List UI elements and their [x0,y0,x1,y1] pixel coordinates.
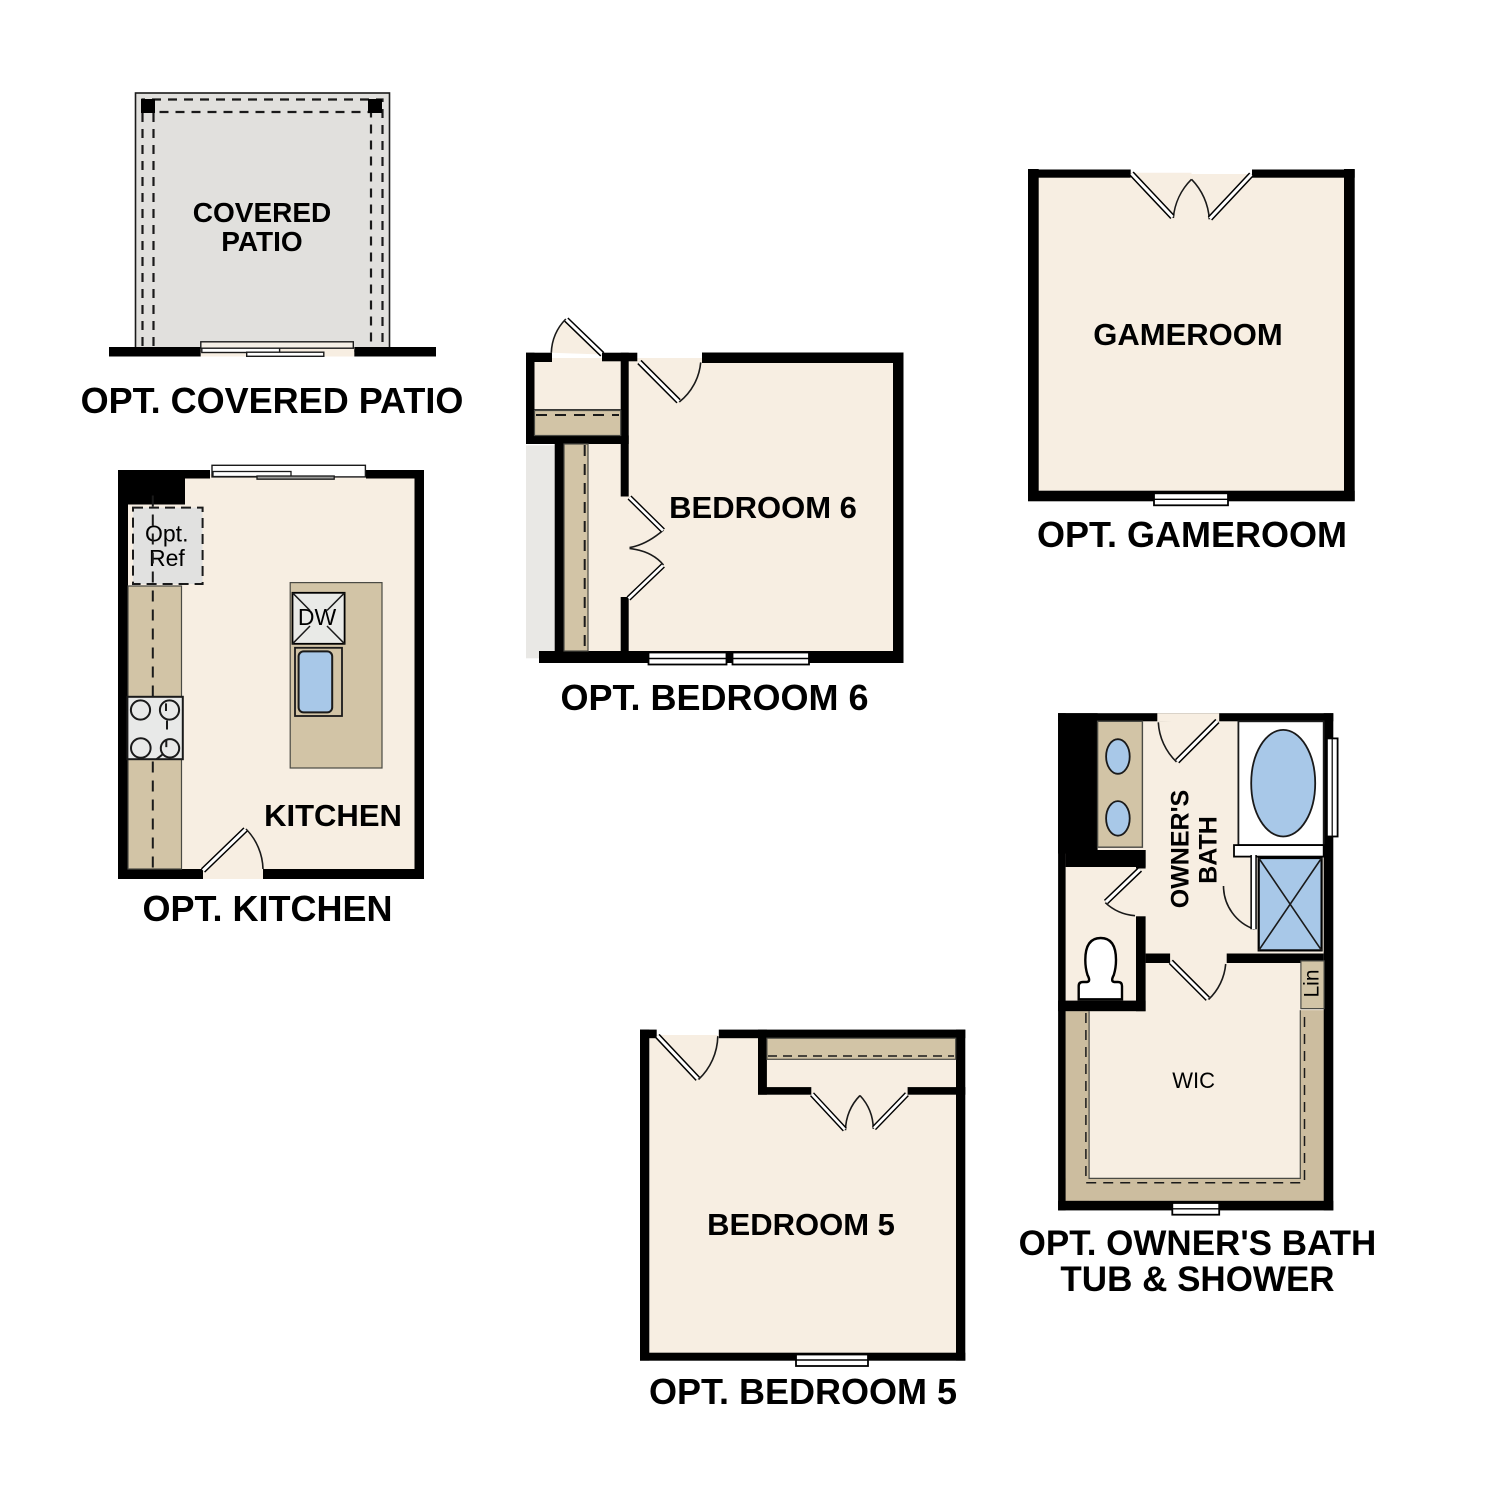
svg-text:Opt.: Opt. [145,521,188,547]
svg-text:BEDROOM 6: BEDROOM 6 [669,490,857,525]
svg-text:BATH: BATH [1195,816,1223,884]
svg-text:BEDROOM 5: BEDROOM 5 [707,1207,895,1242]
svg-text:DW: DW [298,604,337,630]
svg-text:KITCHEN: KITCHEN [264,798,402,833]
svg-text:OPT. KITCHEN: OPT. KITCHEN [142,888,392,929]
svg-text:Lin: Lin [1301,969,1324,997]
svg-text:OPT. GAMEROOM: OPT. GAMEROOM [1037,514,1347,555]
svg-text:Ref: Ref [149,545,185,571]
svg-text:PATIO: PATIO [221,226,302,257]
svg-text:OWNER'S: OWNER'S [1167,790,1195,908]
svg-text:COVERED: COVERED [193,197,331,228]
svg-text:WIC: WIC [1172,1068,1215,1093]
svg-text:OPT. OWNER'S BATH: OPT. OWNER'S BATH [1019,1224,1377,1263]
svg-text:TUB & SHOWER: TUB & SHOWER [1060,1260,1334,1299]
svg-text:OPT. BEDROOM 5: OPT. BEDROOM 5 [649,1371,957,1412]
svg-text:OPT. BEDROOM 6: OPT. BEDROOM 6 [560,677,868,718]
svg-text:OPT. COVERED PATIO: OPT. COVERED PATIO [81,380,464,421]
svg-text:GAMEROOM: GAMEROOM [1093,317,1282,352]
